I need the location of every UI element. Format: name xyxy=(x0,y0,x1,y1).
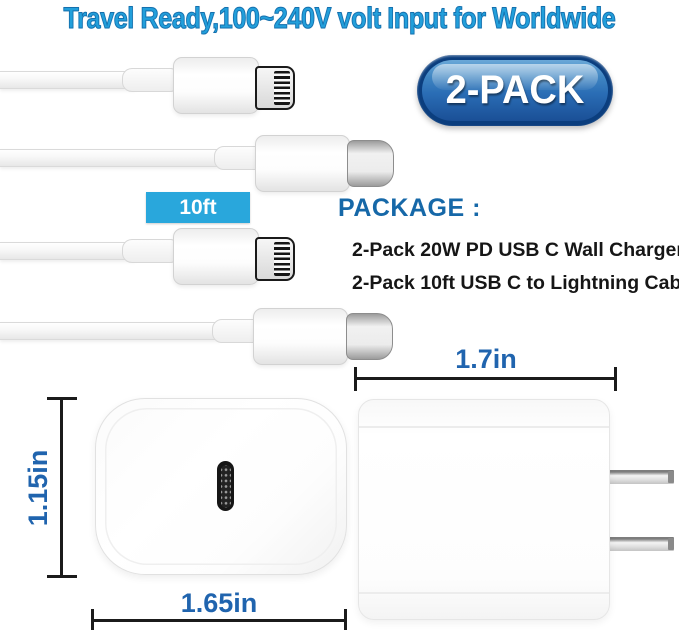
package-heading: PACKAGE : xyxy=(338,194,481,223)
cable-wire xyxy=(0,242,141,260)
lightning-pins xyxy=(274,71,290,105)
dimension-tick xyxy=(47,397,77,400)
usb-c-plug-body xyxy=(253,308,348,365)
dimension-tick xyxy=(344,609,347,630)
two-pack-badge: 2-PACK xyxy=(417,55,613,126)
dimension-line xyxy=(60,398,63,578)
lightning-plug-body xyxy=(173,57,259,114)
cable-length-badge: 10ft xyxy=(146,192,250,223)
lightning-pins xyxy=(274,242,290,276)
dimension-tick xyxy=(47,575,77,578)
usb-c-port-pins xyxy=(221,465,231,508)
wall-charger-front-image xyxy=(95,398,347,575)
charger-seam xyxy=(359,426,609,428)
package-item-cables: 2-Pack 10ft USB C to Lightning Cables xyxy=(352,267,679,300)
dimension-line xyxy=(355,377,617,380)
dimension-tick xyxy=(91,609,94,630)
package-list: 2-Pack 20W PD USB C Wall Charger 2-Pack … xyxy=(352,234,679,300)
cable-wire xyxy=(0,149,226,167)
cable-strain-relief xyxy=(122,68,180,92)
plug-prong-icon xyxy=(600,537,674,551)
package-item-charger: 2-Pack 20W PD USB C Wall Charger xyxy=(352,234,679,267)
cable-wire xyxy=(0,322,226,340)
lightning-plug-body xyxy=(173,228,259,285)
cable-wire xyxy=(0,71,141,89)
usb-c-plug-body xyxy=(255,135,350,192)
usb-c-port-icon xyxy=(217,461,234,511)
lightning-connector-icon xyxy=(255,237,295,281)
dimension-label-front-width: 1.65in xyxy=(92,588,346,619)
usb-c-connector-icon xyxy=(347,140,394,187)
title-text: Travel Ready,100~240V volt Input for Wor… xyxy=(64,2,616,36)
dimension-tick xyxy=(614,367,617,391)
lightning-connector-icon xyxy=(255,66,295,110)
plug-prong-icon xyxy=(600,470,674,484)
dimension-label-front-height: 1.15in xyxy=(23,423,53,553)
dimension-tick xyxy=(354,367,357,391)
product-image: Travel Ready,100~240V volt Input for Wor… xyxy=(0,0,679,630)
wall-charger-side-image xyxy=(358,399,610,620)
title: Travel Ready,100~240V volt Input for Wor… xyxy=(0,2,679,36)
cable-strain-relief xyxy=(122,239,180,263)
dimension-label-side-width: 1.7in xyxy=(355,344,617,375)
dimension-line xyxy=(92,619,346,622)
charger-seam xyxy=(359,592,609,594)
two-pack-badge-label: 2-PACK xyxy=(446,68,585,113)
two-pack-badge-inner: 2-PACK xyxy=(422,60,608,121)
